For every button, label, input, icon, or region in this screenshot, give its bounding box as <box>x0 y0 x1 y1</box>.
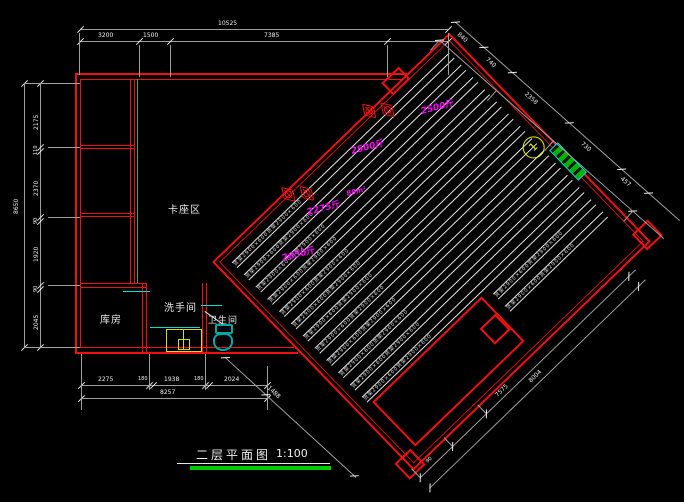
dim-label: 1920 <box>34 247 40 262</box>
dim-label: 7385 <box>264 33 279 39</box>
dim-ext-line <box>170 45 171 77</box>
dim-label: 2275 <box>98 377 113 383</box>
dim-label: 90 <box>34 218 39 224</box>
dim-ext-line <box>387 45 388 77</box>
dim-label: 740 <box>484 57 497 69</box>
dim-label: 1938 <box>164 377 179 383</box>
title-underline-white <box>177 463 330 464</box>
dim-label: 840 <box>456 32 469 44</box>
title-underline-green <box>190 466 331 470</box>
dim-ext-line <box>24 83 25 347</box>
dim-ext-line <box>149 354 150 390</box>
dim-label: 457 <box>619 176 632 188</box>
dim-tick <box>628 272 629 281</box>
cad-canvas: 卡座区 库房 洗手间 卫生间 货架2900×600货架2900×600货架290… <box>0 0 684 502</box>
dim-tick <box>452 442 453 451</box>
capacity-label: 2275斤 <box>306 197 341 218</box>
dim-label: 10525 <box>218 21 237 27</box>
dim-tick <box>638 282 639 291</box>
dim-tick <box>486 409 487 418</box>
dimension-layer: 1052532001500738586502175110237090192090… <box>0 0 684 502</box>
drawing-title: 二层平面图 <box>196 446 271 463</box>
dim-label: 8257 <box>160 390 175 396</box>
dim-label: 2045 <box>34 315 40 330</box>
dim-ext-line <box>487 90 497 101</box>
dim-label: 90 <box>34 286 39 292</box>
rotated-dim-chain: 8407402358730457 <box>422 14 684 258</box>
dim-tick <box>420 473 421 482</box>
dim-label: 90 <box>426 456 434 464</box>
capacity-label: 2650斤 <box>281 243 316 264</box>
dim-tick <box>429 483 430 492</box>
dim-ext-line <box>623 210 633 221</box>
dim-line <box>455 21 680 221</box>
dim-label: 180 <box>138 377 148 382</box>
dim-label: 3200 <box>98 33 113 39</box>
rotated-dim-chain: 9075758004 <box>414 264 658 501</box>
dim-ext-line <box>81 354 82 410</box>
dim-line <box>439 39 664 239</box>
dim-line <box>80 41 448 42</box>
dim-line <box>429 279 645 488</box>
dim-ext-line <box>205 354 206 390</box>
dim-line <box>48 285 80 286</box>
dim-label: 110 <box>34 145 39 155</box>
capacity-label: 89m² <box>346 185 367 198</box>
dim-label: 730 <box>579 141 592 153</box>
dim-ext-line <box>544 140 554 151</box>
dim-ext-line <box>79 33 80 75</box>
dim-line <box>24 83 80 84</box>
dim-line <box>80 29 448 30</box>
dim-line <box>24 347 80 348</box>
dim-tick <box>261 394 270 395</box>
dim-line <box>81 398 267 399</box>
dim-label: 2370 <box>34 181 40 196</box>
dim-label: 1500 <box>143 33 158 39</box>
dim-line <box>48 147 80 148</box>
title-block: 二层平面图 1:100 <box>0 440 400 480</box>
capacity-label: 2500斤 <box>350 136 385 157</box>
dim-ext-line <box>139 45 140 77</box>
dim-tick <box>221 357 230 358</box>
capacity-label: 2500斤 <box>420 96 455 117</box>
dim-line <box>48 217 80 218</box>
dim-label: 8650 <box>14 199 20 214</box>
dim-label: 180 <box>194 377 204 382</box>
drawing-scale: 1:100 <box>276 447 308 460</box>
dim-label: 2175 <box>34 115 40 130</box>
